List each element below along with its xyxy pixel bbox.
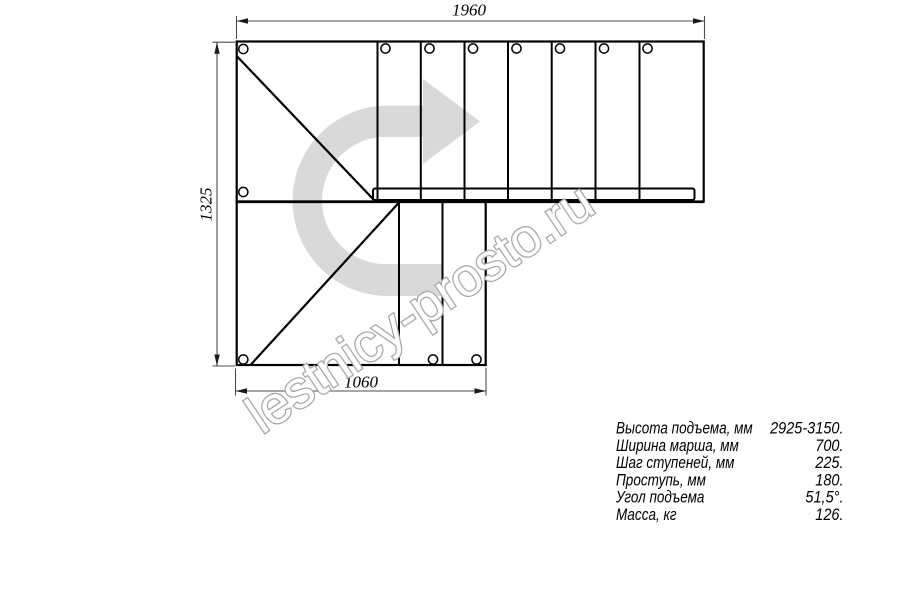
svg-text:Высота подъема, мм: Высота подъема, мм — [616, 419, 753, 438]
svg-text:225.: 225. — [814, 454, 843, 472]
svg-text:Ширина марша, мм: Ширина марша, мм — [616, 437, 739, 456]
svg-text:Шаг ступеней, мм: Шаг ступеней, мм — [616, 454, 735, 473]
svg-text:1325: 1325 — [197, 188, 216, 222]
svg-text:1960: 1960 — [452, 1, 487, 20]
svg-text:Проступь, мм: Проступь, мм — [616, 471, 707, 490]
svg-text:51,5°.: 51,5°. — [805, 489, 843, 507]
svg-text:2925-3150.: 2925-3150. — [769, 420, 843, 438]
svg-text:180.: 180. — [815, 471, 843, 489]
svg-text:126.: 126. — [815, 506, 843, 524]
svg-text:Масса, кг: Масса, кг — [616, 506, 677, 525]
svg-text:700.: 700. — [815, 437, 843, 455]
svg-text:Угол подъема: Угол подъема — [615, 488, 704, 507]
